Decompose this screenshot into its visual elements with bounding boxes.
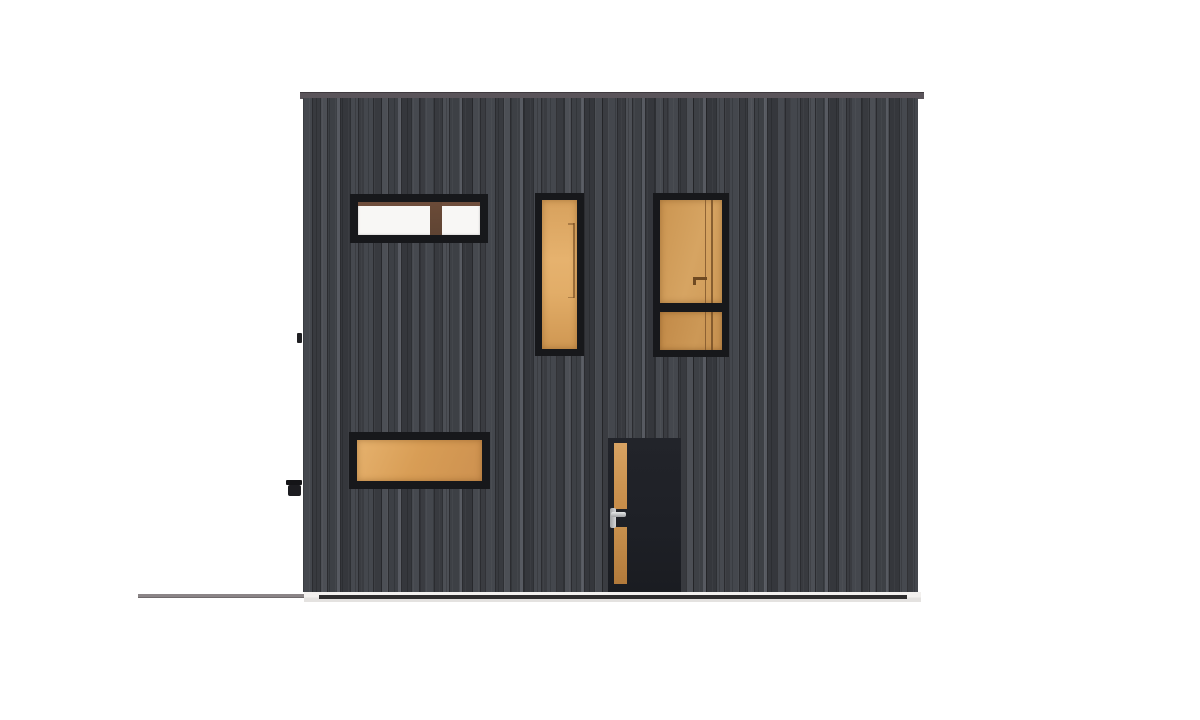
low-window-glazing [357,440,482,481]
facade-cladding [303,98,918,592]
interior-door-edge [705,200,706,303]
door-handle-plate [610,508,616,528]
door-handle-lever [611,512,626,517]
tall-window-right-upper-pane [660,200,722,303]
plinth [304,592,921,602]
door-glass-slot-upper [614,443,627,509]
interior-door-edge [711,312,713,350]
door-glass-slot-lower [614,527,627,584]
interior-reflection-tick [568,223,574,225]
outdoor-tap-body [288,485,301,496]
interior-door-edge [705,312,706,350]
outdoor-tap [286,480,306,497]
entry-door [608,438,681,592]
clerestory-mullion [430,202,442,235]
elevation-canvas [0,0,1200,720]
clerestory-window-glazing [358,202,480,235]
interior-door-edge [711,200,713,303]
interior-reflection-line [573,223,575,298]
low-window [349,432,490,489]
clerestory-window [350,194,488,243]
interior-reflection-tick [568,297,574,299]
ground-line [138,594,307,598]
interior-door-handle [693,277,707,280]
tall-window-right [653,193,729,357]
plinth-shadow-groove [319,595,907,599]
clerestory-head-strip [358,202,480,206]
tall-window-left [535,193,584,356]
tall-window-left-glazing [542,200,577,349]
wall-bracket [297,333,302,343]
tall-window-right-lower-pane [660,312,722,350]
